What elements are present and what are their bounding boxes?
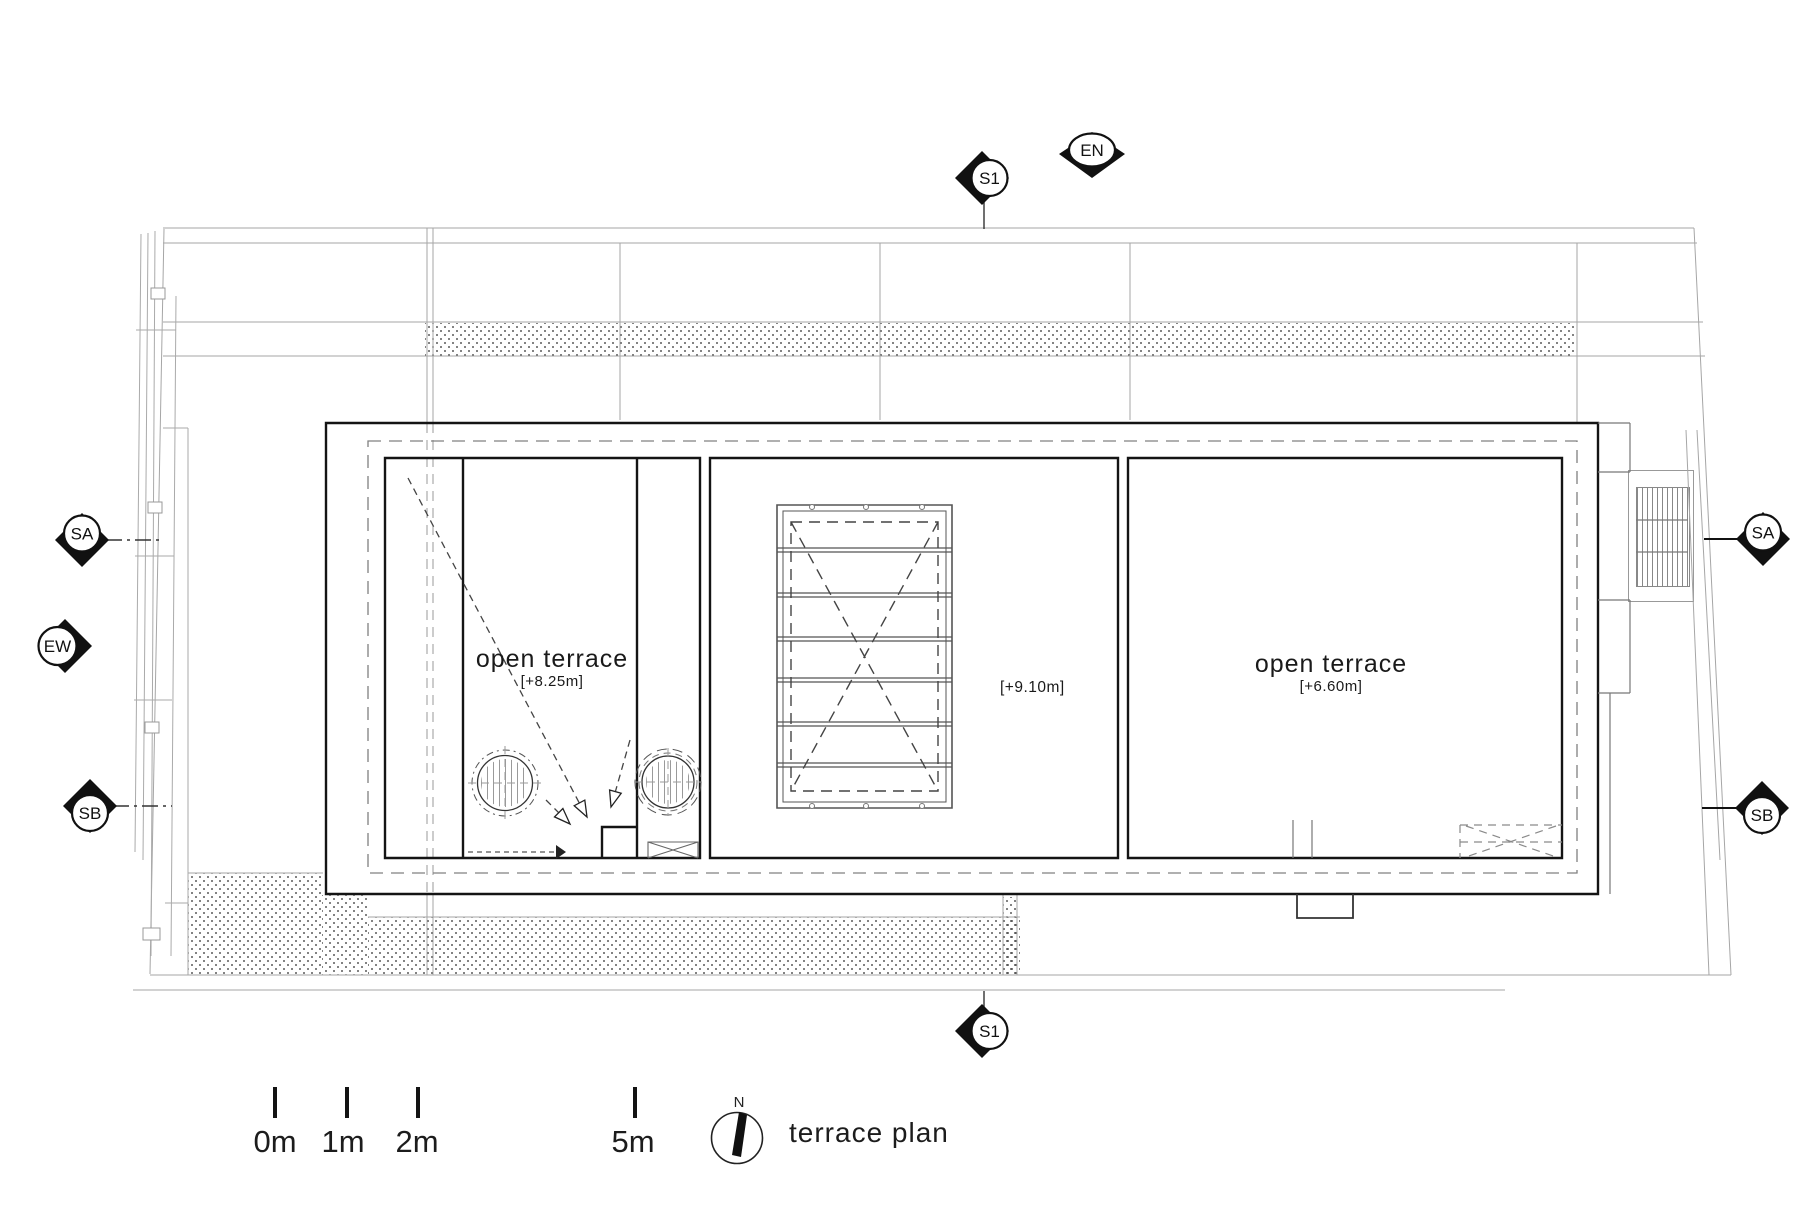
hatch-box-left [648,842,698,858]
label-open-terrace-right: open terrace [+6.60m] [1231,651,1431,695]
hatch-box-right [1460,825,1562,858]
svg-text:EN: EN [1080,141,1104,160]
svg-text:S1: S1 [979,169,1000,188]
scale-tick-5m [633,1087,637,1118]
svg-text:SB: SB [1751,806,1774,825]
section-marker-sb-left: SB [63,779,172,833]
terrace-plan-canvas: S1 EN SA EW SB [0,0,1800,1212]
skylight [777,505,952,809]
scale-label-5m: 5m [588,1124,678,1160]
svg-text:S1: S1 [979,1022,1000,1041]
svg-text:SA: SA [1752,524,1775,543]
drawing-title: terrace plan [789,1117,949,1149]
terrace-right-name: open terrace [1231,651,1431,677]
label-open-terrace-left: open terrace [+8.25m] [452,646,652,690]
north-arrow: N [712,1094,763,1164]
elevation-marker-ew-left: EW [38,619,92,673]
section-marker-s1-top: S1 [955,151,1009,229]
plan-linework: S1 EN SA EW SB [0,0,1800,1212]
svg-text:SA: SA [71,525,94,544]
scale-label-2m: 2m [372,1124,462,1160]
section-marker-sb-right: SB [1702,781,1789,835]
north-label: N [734,1094,745,1111]
label-elevation-mid: [+9.10m] [1000,679,1065,697]
scale-tick-2m [416,1087,420,1118]
section-marker-sa-right: SA [1704,512,1790,566]
scale-tick-0m [273,1087,277,1118]
svg-text:SB: SB [79,804,102,823]
terrace-left-elevation: [+8.25m] [452,673,652,690]
site-boundary [133,228,1731,990]
terrace-right-elevation: [+6.60m] [1231,678,1431,695]
section-marker-sa-left: SA [55,513,163,567]
section-markers: S1 EN SA EW SB [38,132,1790,1058]
svg-text:EW: EW [44,637,71,656]
left-fence-detail [134,231,188,956]
scale-tick-1m [345,1087,349,1118]
section-marker-s1-bottom: S1 [955,991,1009,1058]
elevation-marker-en: EN [1059,132,1125,178]
terrace-left-name: open terrace [452,646,652,672]
